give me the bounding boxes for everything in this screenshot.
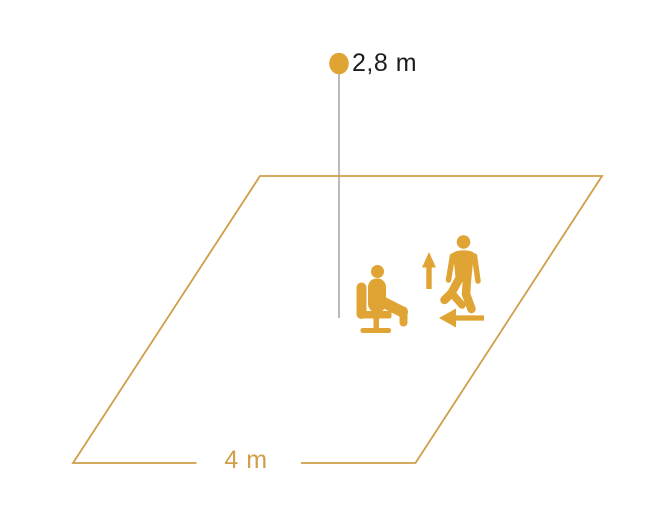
left-arrow-icon xyxy=(439,309,484,328)
area-width-label: 4 m xyxy=(196,447,296,474)
sensor-coverage-diagram: 2,8 m 4 m xyxy=(0,0,665,507)
diagram-graphics xyxy=(0,0,665,507)
up-arrow-icon xyxy=(422,252,436,289)
sensor-dot xyxy=(329,53,349,75)
detection-area-outline xyxy=(73,176,602,463)
mounting-height-label: 2,8 m xyxy=(352,50,417,77)
walking-person-icon xyxy=(445,235,479,309)
seated-person-icon xyxy=(357,265,404,333)
